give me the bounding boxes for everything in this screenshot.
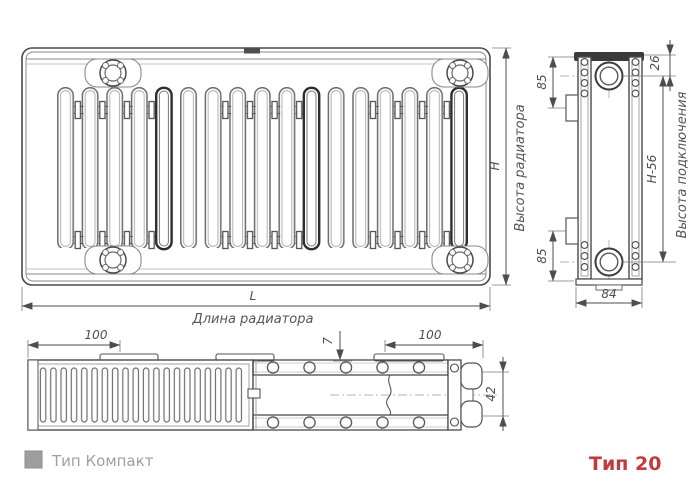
plan-view (28, 354, 497, 430)
dim-bottom-offset: 85 (535, 248, 549, 263)
top-connection-port (596, 63, 623, 90)
dim-sheet-gap: 7 (321, 337, 335, 345)
type-label: Тип 20 (589, 453, 661, 475)
panel-section-circles (256, 361, 446, 375)
dim-top-offset: 85 (535, 74, 549, 89)
legend-label: Тип Компакт (51, 452, 154, 470)
wall-bracket-tab (566, 95, 578, 121)
dim-length-label: L (250, 289, 257, 303)
caption-height: Высота радиатора (513, 104, 528, 231)
dim-left-offset: 100 (85, 328, 108, 342)
caption-connection: Высота подключения (675, 91, 690, 238)
corner-screw (100, 60, 126, 86)
dim-height-label: H (488, 161, 502, 170)
radiator-drawing-svg: L Длина радиатора H Высота радиатора 85 (0, 0, 700, 500)
bottom-connection-port (596, 249, 623, 276)
back-channel (156, 88, 171, 249)
dim-connection-span: H-56 (645, 154, 659, 183)
side-view (560, 52, 644, 290)
dim-top-connection: 26 (648, 55, 662, 71)
wall-bracket-tab (566, 218, 578, 244)
legend: Тип Компакт (25, 451, 154, 470)
drawing-canvas: L Длина радиатора H Высота радиатора 85 (0, 0, 700, 500)
convector-grille (38, 367, 244, 423)
front-view (22, 48, 490, 285)
back-channel (304, 88, 319, 249)
corner-screw (100, 247, 126, 273)
dim-depth: 84 (601, 287, 616, 301)
caption-length: Длина радиатора (192, 312, 314, 327)
legend-swatch (25, 451, 42, 468)
dim-panel-spacing: 42 (484, 386, 498, 401)
dim-right-offset: 100 (419, 328, 442, 342)
corner-screw (447, 60, 473, 86)
corner-screw (447, 247, 473, 273)
panel-section-circles (256, 416, 446, 430)
air-vent-marker (244, 49, 260, 54)
back-channel (451, 88, 466, 249)
